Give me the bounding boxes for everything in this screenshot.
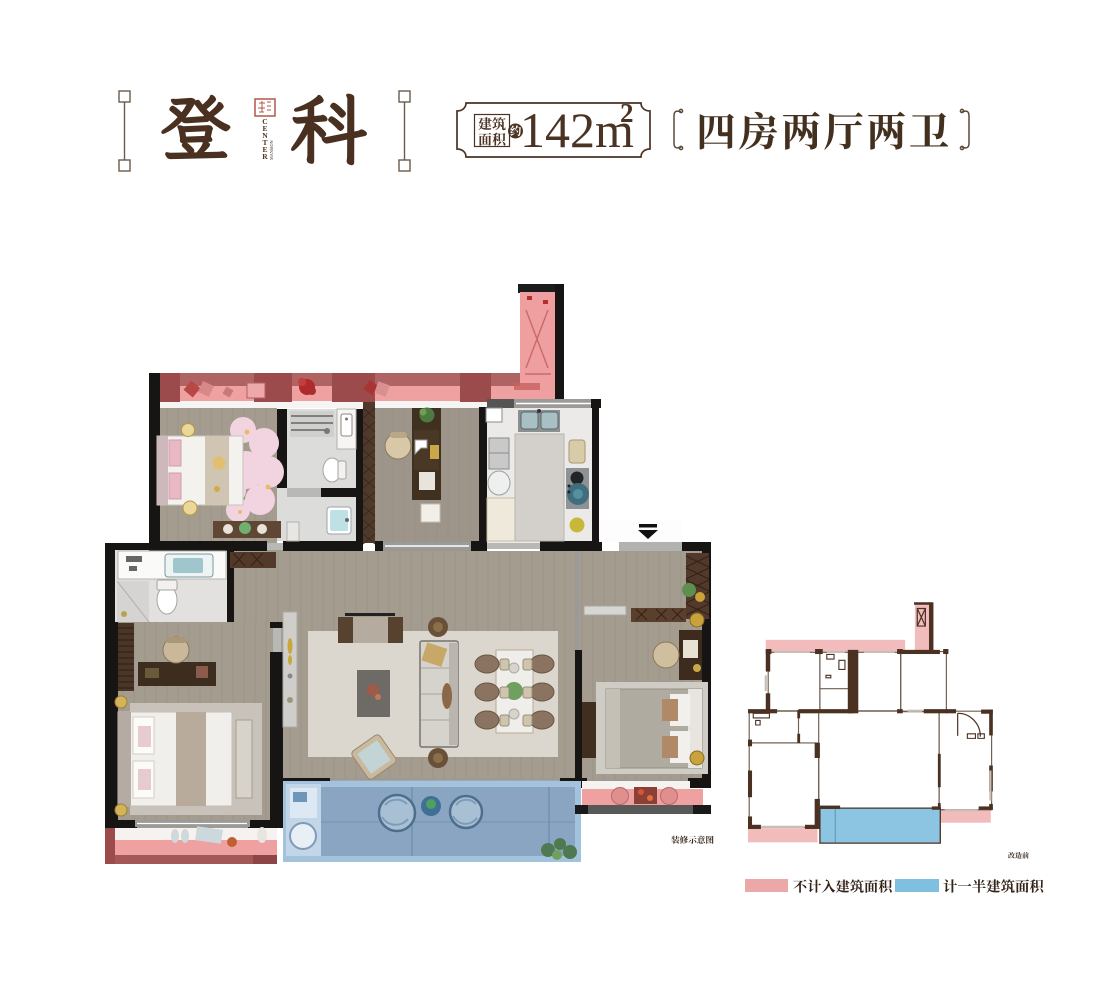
svg-text:R: R [262, 152, 268, 161]
svg-text:2: 2 [620, 98, 634, 128]
svg-text:MANSION: MANSION [269, 140, 274, 160]
svg-text:142m: 142m [520, 102, 634, 158]
